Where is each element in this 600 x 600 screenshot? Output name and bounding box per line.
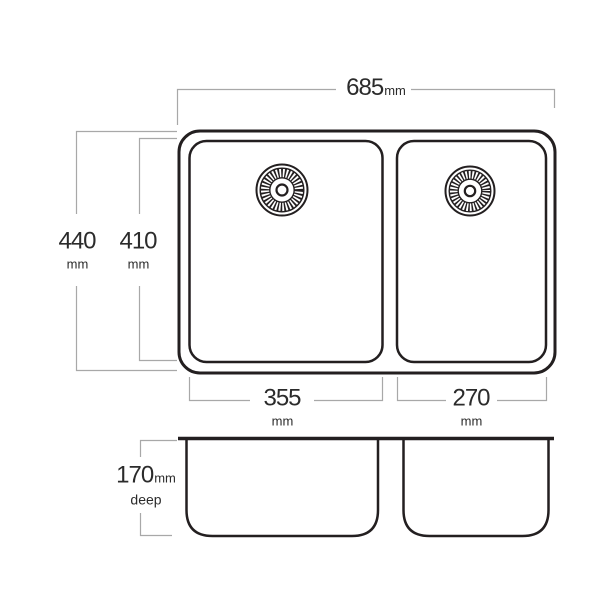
dim-unit-right-bowl-width: mm	[461, 415, 483, 428]
left-bowl-section	[187, 439, 379, 537]
dim-label-bowl-depth: 170 mm deep	[116, 464, 176, 507]
left-drain-icon	[257, 165, 308, 216]
dim-unit-overall-depth: mm	[67, 258, 89, 271]
dim-value-bowl-depth: 170	[116, 464, 153, 488]
right-drain-icon	[446, 167, 495, 216]
dim-unit-left-bowl-width: mm	[272, 415, 294, 428]
dim-label-overall-width: 685 mm	[346, 76, 406, 100]
dim-value-overall-width: 685	[346, 76, 383, 100]
sink-drawing	[0, 0, 600, 600]
right-bowl-section	[404, 439, 549, 537]
sink-dimension-diagram: 685 mm 440 mm 410 mm 355 mm 270 mm 170 m…	[0, 0, 600, 600]
dim-unit-bowl-inner-depth: mm	[128, 258, 150, 271]
top-view	[179, 131, 555, 373]
dim-value-bowl-inner-depth: 410	[119, 230, 156, 254]
dim-value-left-bowl-width: 355	[263, 387, 300, 411]
side-view	[178, 439, 554, 537]
dim-label-right-bowl-width: 270 mm	[452, 387, 489, 428]
sink-outer-outline	[179, 131, 555, 373]
dim-value-overall-depth: 440	[58, 230, 95, 254]
dim-label-bowl-inner-depth: 410 mm	[119, 230, 156, 271]
dim-label-left-bowl-width: 355 mm	[263, 387, 300, 428]
dim-qualifier-bowl-depth: deep	[130, 493, 161, 507]
dim-unit-overall-width: mm	[384, 84, 406, 97]
dim-unit-bowl-depth: mm	[154, 472, 176, 485]
dim-label-overall-depth: 440 mm	[58, 230, 95, 271]
dim-value-right-bowl-width: 270	[452, 387, 489, 411]
